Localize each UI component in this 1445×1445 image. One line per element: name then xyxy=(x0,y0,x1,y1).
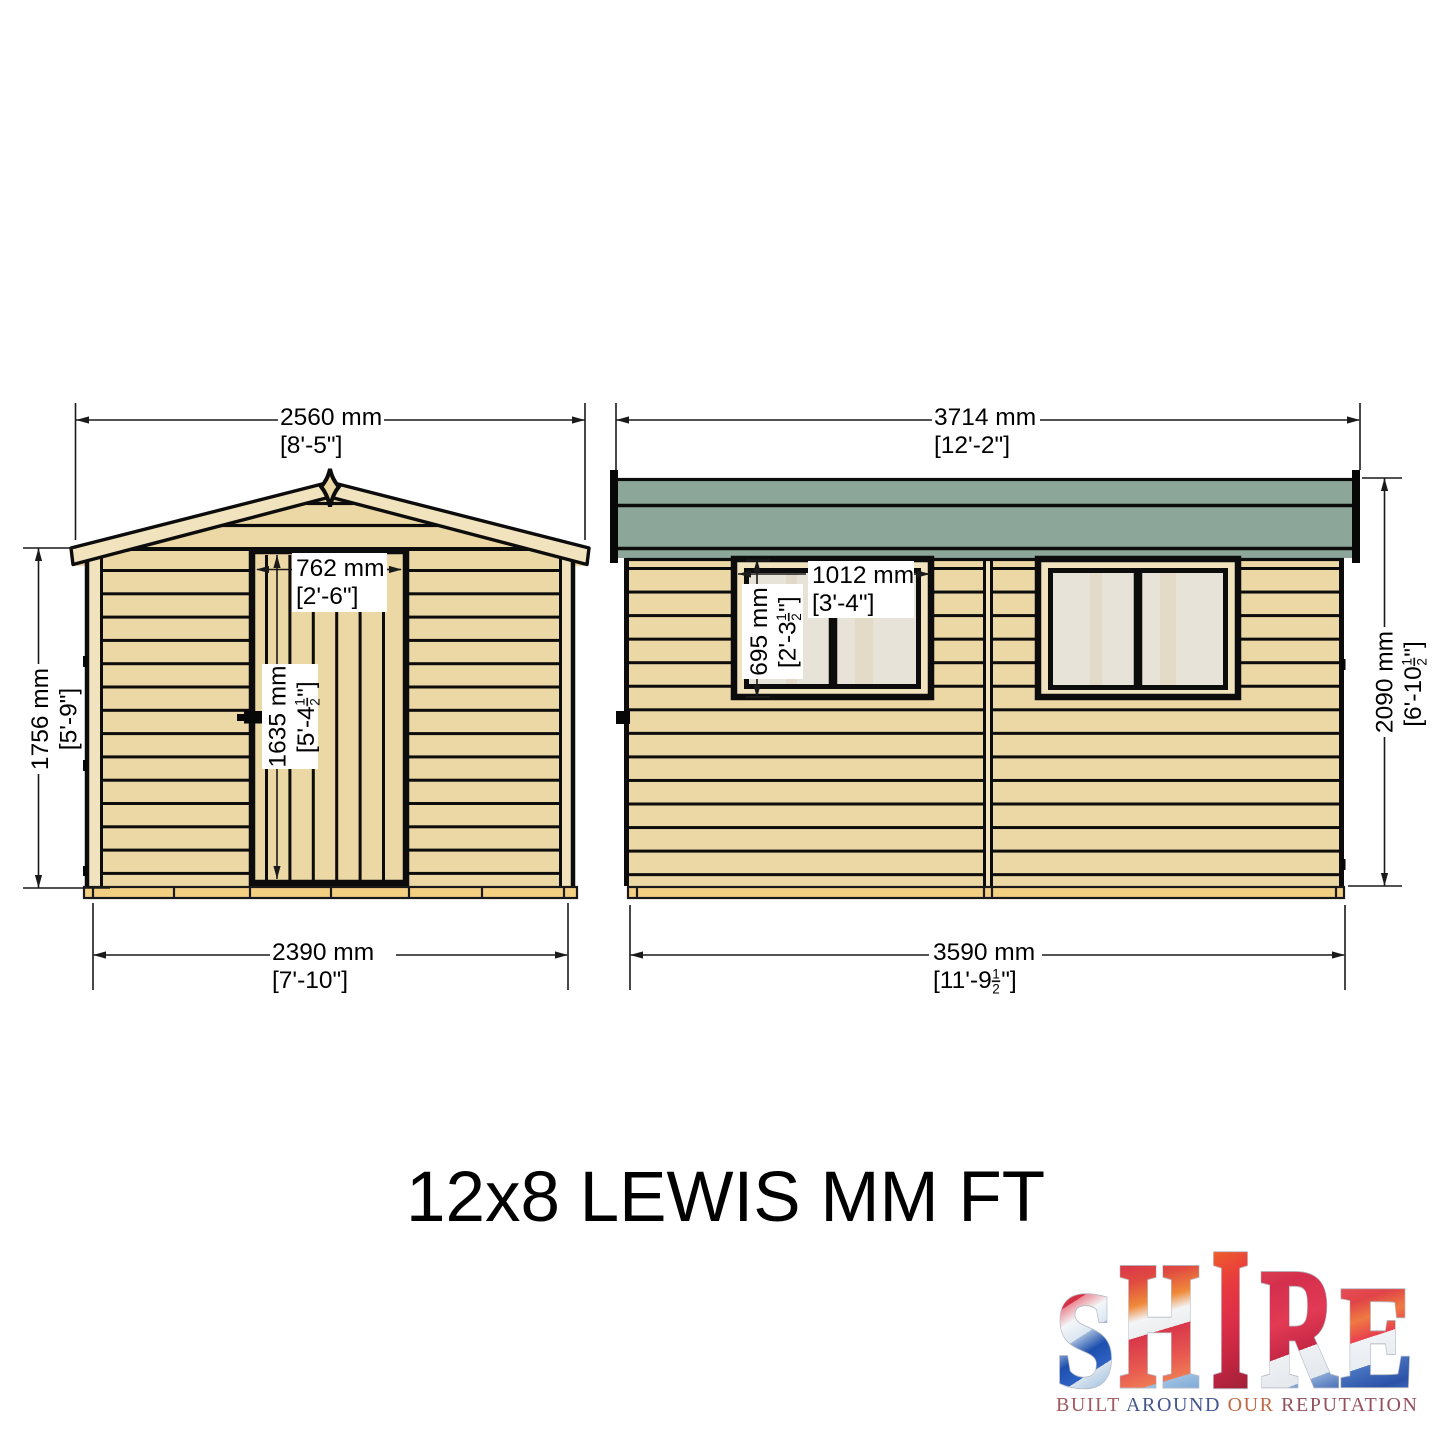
svg-text:1: 1 xyxy=(293,698,308,706)
svg-text:"]: "] xyxy=(1400,641,1427,657)
svg-text:2: 2 xyxy=(308,698,323,706)
svg-text:1756 mm: 1756 mm xyxy=(27,668,54,770)
svg-text:2: 2 xyxy=(789,613,804,621)
svg-text:[6'-10: [6'-10 xyxy=(1400,666,1427,727)
svg-text:BUILT AROUND OUR REPUTATION: BUILT AROUND OUR REPUTATION xyxy=(1056,1394,1417,1416)
svg-text:695 mm: 695 mm xyxy=(746,587,773,676)
svg-text:[11'-9: [11'-9 xyxy=(933,967,992,994)
svg-text:"]: "] xyxy=(775,596,802,612)
svg-text:2560 mm: 2560 mm xyxy=(280,404,382,431)
svg-text:1: 1 xyxy=(774,613,789,621)
svg-text:3714 mm: 3714 mm xyxy=(934,404,1036,431)
svg-text:1012 mm: 1012 mm xyxy=(812,562,914,589)
svg-text:3590 mm: 3590 mm xyxy=(933,939,1035,966)
svg-text:2090 mm: 2090 mm xyxy=(1372,631,1399,733)
svg-text:2: 2 xyxy=(992,982,1000,997)
svg-text:S: S xyxy=(1056,1266,1114,1414)
svg-text:2390 mm: 2390 mm xyxy=(272,939,374,966)
svg-text:[2'-3: [2'-3 xyxy=(775,621,802,668)
svg-text:[3'-4"]: [3'-4"] xyxy=(812,590,874,617)
svg-text:[7'-10"]: [7'-10"] xyxy=(272,967,348,994)
svg-text:1635 mm: 1635 mm xyxy=(265,665,292,767)
svg-text:2: 2 xyxy=(1415,658,1430,666)
svg-text:[2'-6"]: [2'-6"] xyxy=(296,583,358,610)
svg-text:1: 1 xyxy=(1400,658,1415,666)
svg-text:1: 1 xyxy=(992,967,1000,982)
svg-text:E: E xyxy=(1341,1258,1413,1416)
svg-text:"]: "] xyxy=(293,681,320,697)
svg-text:"]: "] xyxy=(1001,967,1017,994)
svg-text:[8'-5"]: [8'-5"] xyxy=(280,432,342,459)
svg-text:[12'-2"]: [12'-2"] xyxy=(934,432,1010,459)
svg-text:[5'-9"]: [5'-9"] xyxy=(56,688,83,750)
svg-text:12x8 LEWIS MM FT: 12x8 LEWIS MM FT xyxy=(406,1158,1045,1237)
svg-text:[5'-4: [5'-4 xyxy=(293,706,320,753)
svg-text:762 mm: 762 mm xyxy=(296,555,385,582)
